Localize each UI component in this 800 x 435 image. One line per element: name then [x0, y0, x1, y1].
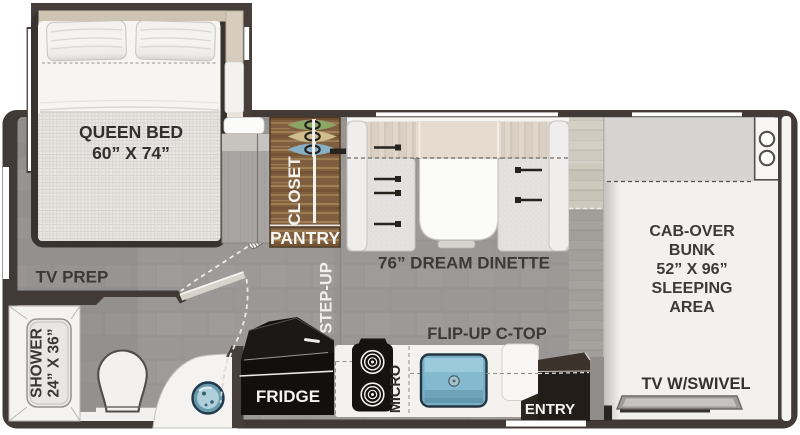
svg-text:SLEEPING: SLEEPING — [652, 280, 733, 297]
svg-text:SHOWER: SHOWER — [29, 328, 46, 398]
svg-text:ENTRY: ENTRY — [525, 401, 575, 418]
svg-text:60” X 74”: 60” X 74” — [92, 143, 170, 163]
svg-text:24” X 36”: 24” X 36” — [46, 329, 63, 398]
svg-text:FRIDGE: FRIDGE — [256, 387, 320, 406]
svg-text:STEP-UP: STEP-UP — [318, 262, 336, 334]
svg-text:CAB-OVER: CAB-OVER — [649, 223, 735, 240]
svg-text:TV PREP: TV PREP — [36, 268, 109, 287]
svg-text:MICRO: MICRO — [388, 365, 404, 413]
svg-text:BUNK: BUNK — [669, 242, 716, 259]
svg-text:76” DREAM DINETTE: 76” DREAM DINETTE — [378, 254, 550, 273]
svg-text:FLIP-UP C-TOP: FLIP-UP C-TOP — [427, 325, 546, 343]
svg-text:52” X 96”: 52” X 96” — [656, 261, 727, 278]
svg-text:QUEEN BED: QUEEN BED — [79, 122, 183, 142]
svg-text:CLOSET: CLOSET — [285, 156, 304, 226]
svg-text:TV W/SWIVEL: TV W/SWIVEL — [641, 375, 750, 393]
svg-text:AREA: AREA — [669, 299, 715, 316]
svg-text:PANTRY: PANTRY — [270, 228, 340, 248]
